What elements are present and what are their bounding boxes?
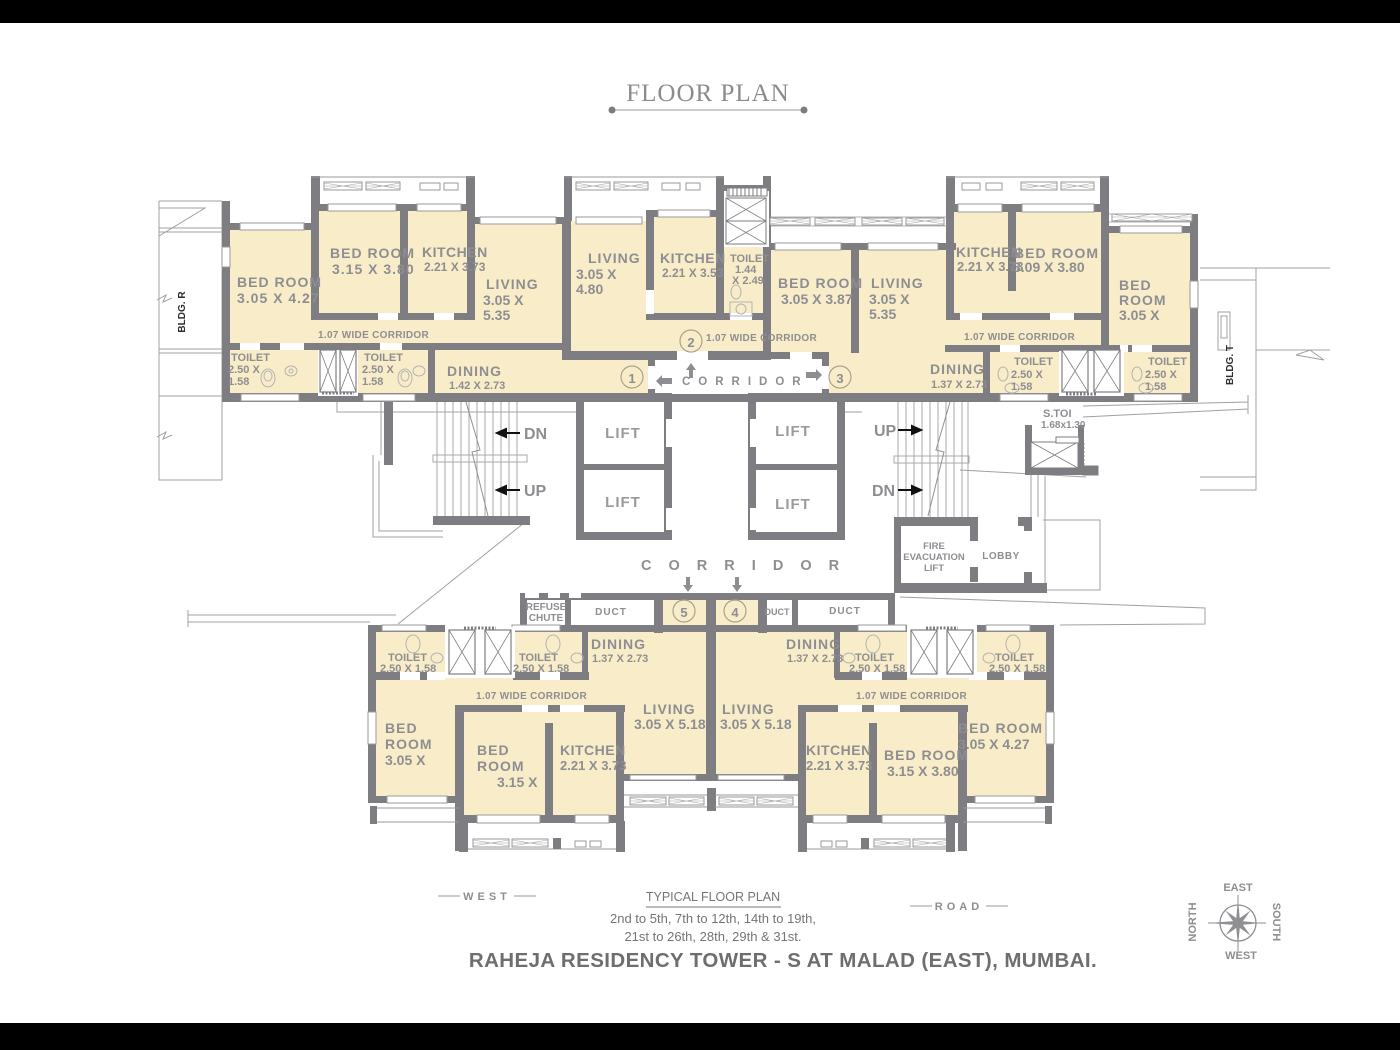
svg-text:DUCT: DUCT — [765, 607, 790, 617]
svg-text:ROOM: ROOM — [385, 736, 433, 752]
svg-text:2.21 X 3.73: 2.21 X 3.73 — [560, 758, 627, 773]
svg-text:LOBBY: LOBBY — [982, 551, 1020, 562]
svg-text:2: 2 — [687, 335, 694, 350]
svg-text:WEST: WEST — [1225, 950, 1257, 962]
svg-text:DINING: DINING — [591, 636, 646, 652]
svg-text:2nd to 5th, 7th to 12th, 14th: 2nd to 5th, 7th to 12th, 14th to 19th, — [610, 911, 816, 926]
svg-text:ROOM: ROOM — [477, 758, 525, 774]
svg-text:4: 4 — [731, 605, 739, 620]
svg-text:2.50 X 1.58: 2.50 X 1.58 — [849, 663, 905, 675]
svg-text:UP: UP — [874, 423, 897, 440]
svg-text:DN: DN — [524, 426, 547, 443]
svg-text:LIFT: LIFT — [775, 423, 811, 440]
svg-text:LIVING: LIVING — [871, 275, 924, 291]
svg-text:BED: BED — [385, 720, 418, 736]
svg-text:3.05 X 5.18: 3.05 X 5.18 — [634, 716, 706, 732]
svg-text:LIFT: LIFT — [605, 494, 641, 511]
svg-text:2.21 X 3.53: 2.21 X 3.53 — [662, 266, 724, 280]
svg-text:3.05 X: 3.05 X — [1119, 307, 1160, 323]
svg-text:LIVING: LIVING — [643, 701, 696, 717]
svg-text:TOILET: TOILET — [1148, 356, 1187, 368]
svg-text:ROAD: ROAD — [935, 901, 983, 913]
svg-text:UP: UP — [524, 483, 547, 500]
svg-text:3: 3 — [836, 371, 843, 386]
svg-text:1.58: 1.58 — [1011, 381, 1032, 393]
svg-text:REFUSE: REFUSE — [526, 602, 567, 613]
svg-text:BED ROOM: BED ROOM — [884, 747, 969, 763]
svg-text:1.68x1.30: 1.68x1.30 — [1041, 420, 1086, 431]
svg-text:KITCHEN: KITCHEN — [560, 742, 626, 758]
svg-text:2.50 X: 2.50 X — [1011, 369, 1043, 381]
svg-text:2.50 X: 2.50 X — [228, 364, 260, 376]
svg-text:DINING: DINING — [786, 636, 841, 652]
svg-text:BED ROOM: BED ROOM — [778, 275, 863, 291]
svg-text:3.15 X 3.80: 3.15 X 3.80 — [887, 763, 959, 779]
svg-text:SOUTH: SOUTH — [1270, 903, 1282, 942]
svg-text:2.50 X 1.58: 2.50 X 1.58 — [513, 663, 569, 675]
svg-text:BLDG. T: BLDG. T — [1225, 345, 1236, 385]
svg-text:EAST: EAST — [1223, 882, 1253, 894]
svg-text:FIRE: FIRE — [923, 541, 945, 552]
svg-text:BED ROOM: BED ROOM — [237, 274, 322, 290]
svg-text:DUCT: DUCT — [595, 607, 627, 618]
svg-text:1.07 WIDE CORRIDOR: 1.07 WIDE CORRIDOR — [476, 691, 587, 702]
svg-text:EVACUATION: EVACUATION — [903, 552, 965, 563]
svg-text:FLOOR PLAN: FLOOR PLAN — [626, 80, 790, 107]
svg-text:BED: BED — [1119, 277, 1152, 293]
svg-text:DINING: DINING — [447, 363, 502, 379]
svg-text:3.09 X 3.80: 3.09 X 3.80 — [1013, 259, 1085, 275]
svg-text:3.05 X 3.87: 3.05 X 3.87 — [781, 291, 853, 307]
svg-text:WEST: WEST — [463, 891, 511, 903]
svg-text:LIVING: LIVING — [588, 250, 641, 266]
svg-text:3.05 X 4.27: 3.05 X 4.27 — [237, 290, 320, 306]
svg-text:C O R R I D O R: C O R R I D O R — [682, 376, 803, 388]
svg-text:BED: BED — [477, 742, 510, 758]
svg-text:2.50 X 1.58: 2.50 X 1.58 — [989, 663, 1045, 675]
svg-text:LIVING: LIVING — [722, 701, 775, 717]
svg-text:3.15 X: 3.15 X — [497, 774, 538, 790]
svg-text:CHUTE: CHUTE — [529, 613, 564, 624]
svg-text:1.07 WIDE CORRIDOR: 1.07 WIDE CORRIDOR — [856, 691, 967, 702]
svg-text:C O R R I D O R: C O R R I D O R — [641, 558, 846, 574]
svg-text:DUCT: DUCT — [829, 606, 861, 617]
svg-text:1.42 X 2.73: 1.42 X 2.73 — [449, 380, 505, 392]
svg-text:1: 1 — [628, 371, 635, 386]
svg-text:LIVING: LIVING — [486, 276, 539, 292]
svg-text:KITCHEN: KITCHEN — [956, 244, 1022, 260]
svg-text:3.05 X: 3.05 X — [576, 266, 617, 282]
svg-text:TYPICAL FLOOR PLAN: TYPICAL FLOOR PLAN — [646, 890, 780, 904]
svg-text:21st to 26th, 28th, 29th & 31s: 21st to 26th, 28th, 29th & 31st. — [624, 929, 801, 944]
svg-text:LIFT: LIFT — [605, 425, 641, 442]
svg-text:BED ROOM: BED ROOM — [958, 720, 1043, 736]
svg-text:1.37 X 2.73: 1.37 X 2.73 — [931, 379, 987, 391]
svg-text:BED ROOM: BED ROOM — [330, 245, 415, 261]
svg-text:1.37 X 2.73: 1.37 X 2.73 — [787, 653, 843, 665]
svg-text:1.07 WIDE CORRIDOR: 1.07 WIDE CORRIDOR — [318, 330, 429, 341]
svg-text:2.21 X 3.73: 2.21 X 3.73 — [806, 758, 873, 773]
svg-text:NORTH: NORTH — [1187, 902, 1199, 941]
svg-text:DN: DN — [872, 483, 895, 500]
svg-text:2.50 X: 2.50 X — [1145, 369, 1177, 381]
svg-text:1.58: 1.58 — [1145, 381, 1166, 393]
svg-text:TOILET: TOILET — [1014, 356, 1053, 368]
svg-text:1.07 WIDE CORRIDOR: 1.07 WIDE CORRIDOR — [706, 333, 817, 344]
svg-text:1.58: 1.58 — [228, 376, 249, 388]
svg-text:3.05 X 4.27: 3.05 X 4.27 — [958, 736, 1030, 752]
svg-text:LIFT: LIFT — [924, 563, 944, 574]
svg-text:5.35: 5.35 — [869, 306, 896, 322]
svg-text:KITCHEN: KITCHEN — [660, 250, 726, 266]
svg-text:ROOM: ROOM — [1119, 292, 1167, 308]
svg-text:RAHEJA RESIDENCY TOWER - S AT: RAHEJA RESIDENCY TOWER - S AT MALAD (EAS… — [469, 949, 1097, 972]
svg-text:3.05 X: 3.05 X — [483, 292, 524, 308]
svg-text:3.15 X 3.80: 3.15 X 3.80 — [332, 261, 415, 277]
svg-text:2.21 X 3.73: 2.21 X 3.73 — [424, 260, 486, 274]
svg-text:3.05 X 5.18: 3.05 X 5.18 — [720, 716, 792, 732]
svg-text:LIFT: LIFT — [775, 496, 811, 513]
svg-text:5.35: 5.35 — [483, 307, 510, 323]
svg-text:2.50 X: 2.50 X — [362, 364, 394, 376]
svg-text:3.05 X: 3.05 X — [869, 291, 910, 307]
svg-text:1.07 WIDE CORRIDOR: 1.07 WIDE CORRIDOR — [964, 332, 1075, 343]
svg-text:5: 5 — [680, 605, 687, 620]
svg-text:TOILET: TOILET — [364, 352, 403, 364]
svg-text:3.05 X: 3.05 X — [385, 752, 426, 768]
svg-text:KITCHEN: KITCHEN — [806, 742, 872, 758]
svg-text:BLDG. R: BLDG. R — [177, 291, 188, 333]
svg-text:1.37 X 2.73: 1.37 X 2.73 — [592, 653, 648, 665]
svg-text:4.80: 4.80 — [576, 281, 603, 297]
svg-text:TOILET: TOILET — [231, 352, 270, 364]
svg-text:X 2.49: X 2.49 — [732, 275, 764, 287]
svg-text:KITCHEN: KITCHEN — [422, 244, 488, 260]
svg-text:S.TOI: S.TOI — [1043, 408, 1072, 420]
svg-text:2.50 X 1.58: 2.50 X 1.58 — [380, 663, 436, 675]
svg-text:DINING: DINING — [930, 361, 985, 377]
svg-text:1.58: 1.58 — [362, 376, 383, 388]
